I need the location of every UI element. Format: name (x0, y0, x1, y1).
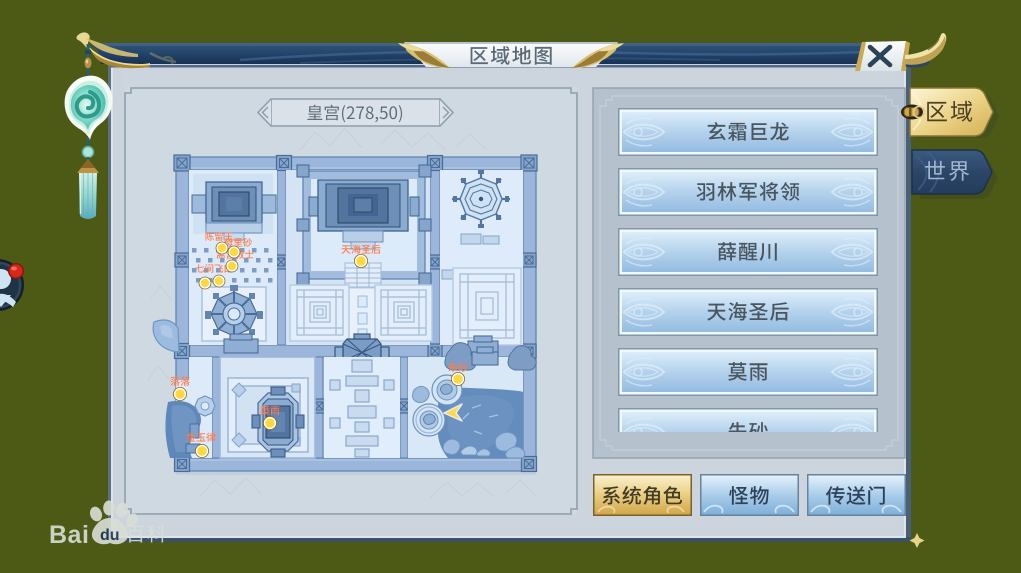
svg-text:du: du (100, 527, 120, 544)
svg-text:Bai: Bai (49, 521, 89, 549)
